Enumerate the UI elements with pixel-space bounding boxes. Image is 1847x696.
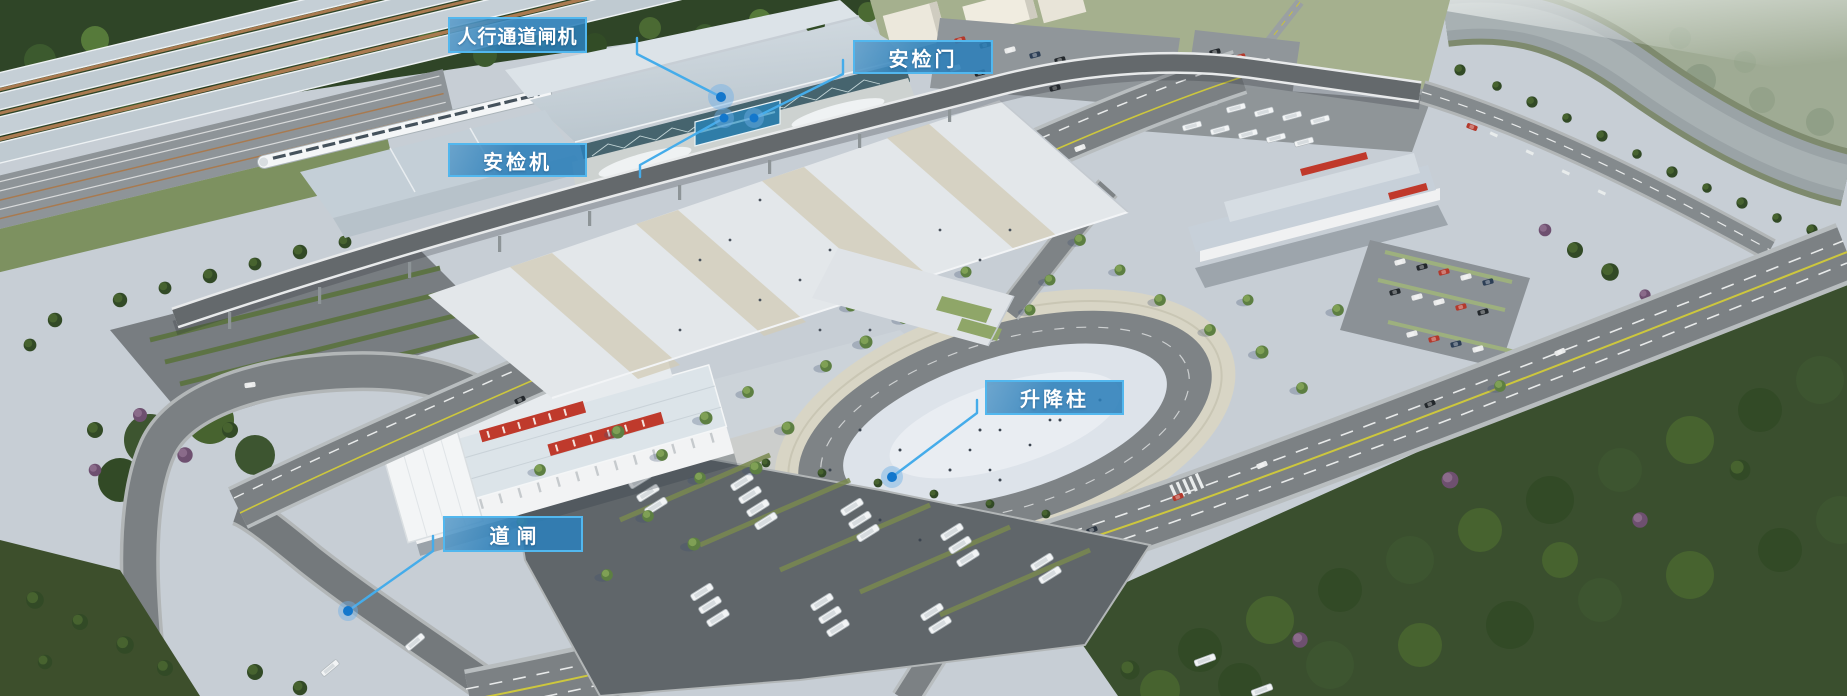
callout-security-door: 安检门 xyxy=(853,40,993,74)
dot-security-door xyxy=(750,114,759,123)
callout-road-barrier-label: 道闸 xyxy=(490,520,544,549)
callout-security-scanner-label: 安检机 xyxy=(483,146,552,175)
dot-security-scanner xyxy=(720,114,729,123)
callout-security-scanner: 安检机 xyxy=(448,143,587,177)
callout-pedestrian-turnstile: 人行通道闸机 xyxy=(448,17,587,53)
callout-lifting-bollard-label: 升降柱 xyxy=(1020,383,1089,412)
dot-pedestrian-turnstile xyxy=(716,92,726,102)
callout-lifting-bollard: 升降柱 xyxy=(985,380,1124,415)
scene-art xyxy=(0,0,1847,696)
dot-road-barrier xyxy=(343,606,353,616)
callout-pedestrian-turnstile-label: 人行通道闸机 xyxy=(457,22,577,49)
callout-road-barrier: 道闸 xyxy=(443,516,583,552)
aerial-station-render: 人行通道闸机 安检门 安检机 升降柱 道闸 xyxy=(0,0,1847,696)
callout-security-door-label: 安检门 xyxy=(889,43,958,72)
dot-lifting-bollard xyxy=(887,472,897,482)
